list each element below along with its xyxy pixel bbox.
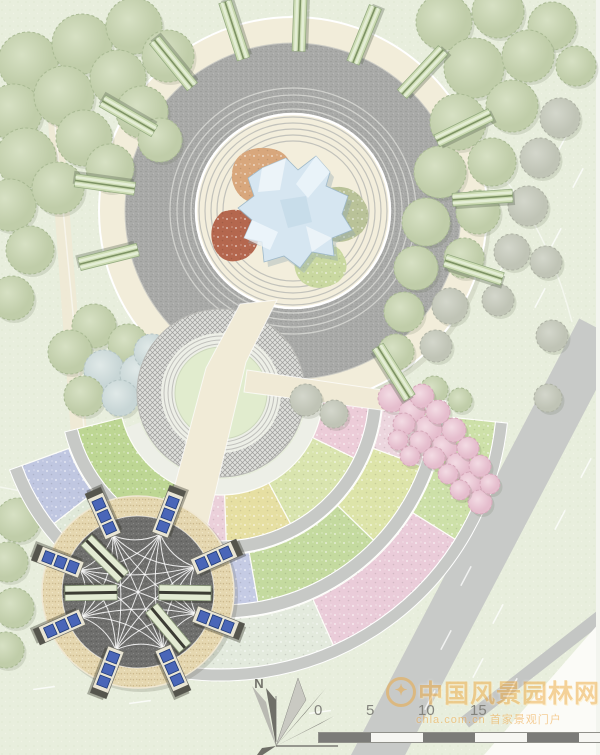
scale-label: 15 — [470, 702, 487, 719]
scale-segment — [423, 733, 475, 742]
amphitheater-bench — [159, 585, 213, 603]
scale-label: 0 — [314, 702, 322, 719]
scale-segment — [527, 733, 579, 742]
scale-label: 10 — [418, 702, 435, 719]
scale-bar-segments — [318, 732, 600, 743]
plaza-bench — [292, 0, 310, 51]
scale-segment — [371, 733, 423, 742]
site-plan-drawing: N — [0, 0, 600, 755]
scale-bar: 051015 — [318, 698, 600, 744]
north-label: N — [254, 676, 263, 691]
right-edge-strip — [596, 0, 600, 755]
scale-label: 5 — [366, 702, 374, 719]
scale-bar-labels: 051015 — [318, 698, 600, 720]
scale-segment — [475, 733, 527, 742]
site-plan-canvas: N 051015 ✦中国风景园林网 chla.com.cn 首家景观门户 — [0, 0, 600, 755]
amphitheater-bench — [63, 582, 117, 600]
scale-segment — [579, 733, 600, 742]
scale-segment — [319, 733, 371, 742]
